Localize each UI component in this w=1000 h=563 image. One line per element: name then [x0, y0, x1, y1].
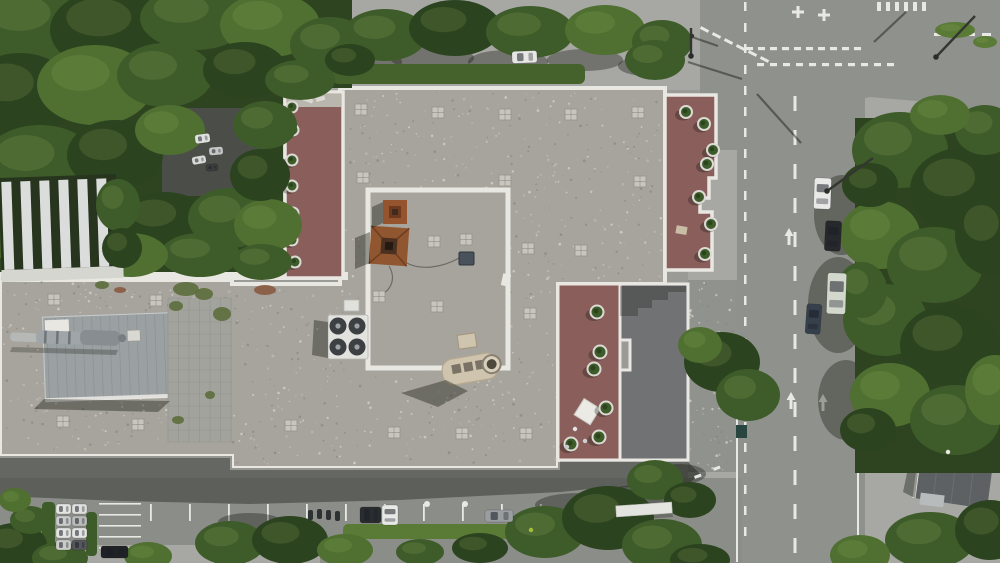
car-body	[194, 133, 210, 144]
lane-dash	[794, 232, 797, 247]
lane-dash	[794, 436, 797, 451]
canopy-highlight	[238, 156, 268, 179]
van-white	[512, 51, 537, 64]
planter-tree-core	[597, 349, 602, 354]
lane-dash	[744, 191, 747, 200]
canopy-highlight	[324, 538, 352, 552]
lane-dash	[744, 464, 747, 473]
van-dark	[360, 507, 381, 523]
car-rear-window	[66, 518, 69, 524]
aerial-scene	[0, 0, 1000, 563]
lane-dash	[744, 23, 747, 32]
hvac-box	[344, 300, 359, 311]
car-windshield	[809, 310, 820, 318]
car-parked	[56, 528, 71, 538]
canopy-highlight	[940, 24, 960, 31]
fan-hub	[335, 323, 340, 328]
lane-dash	[794, 164, 797, 179]
pedestrian	[583, 439, 587, 443]
canopy-highlight	[574, 494, 620, 523]
pedestrian	[573, 427, 577, 431]
canopy-highlight	[331, 48, 356, 62]
canopy-highlight	[684, 332, 706, 348]
canopy-highlight	[899, 237, 947, 271]
lane-dash	[770, 63, 777, 66]
car-body	[485, 510, 513, 522]
canopy-highlight	[634, 465, 662, 483]
planter-tree-core	[704, 161, 709, 166]
planter-tree-core	[696, 194, 701, 199]
canopy-highlight	[243, 206, 277, 229]
lane-dash	[794, 402, 797, 417]
car-windshield	[75, 518, 79, 524]
car-gray	[485, 510, 513, 522]
cross-marking	[823, 9, 826, 21]
stall-dot	[424, 501, 430, 507]
car-rear-window	[119, 548, 124, 556]
car-body	[72, 504, 87, 514]
canopy-highlight	[850, 210, 890, 241]
lane-dash	[835, 63, 842, 66]
lane-dash	[744, 170, 747, 179]
lane-dash	[744, 317, 747, 326]
canopy-highlight	[923, 159, 975, 197]
lane-arrow-stem	[790, 399, 793, 409]
pipe-band	[68, 331, 71, 344]
lane-dash	[794, 368, 797, 383]
lane-dash	[746, 47, 753, 50]
canopy-highlight	[838, 540, 868, 558]
car-rear-window	[374, 509, 378, 521]
lane-dash	[913, 2, 917, 11]
lane-dash	[854, 47, 861, 50]
canopy-highlight	[964, 205, 999, 241]
canopy-highlight	[421, 7, 467, 32]
planter-tree-core	[702, 251, 707, 256]
lane-dash	[794, 266, 797, 281]
hvac-shadow	[312, 320, 328, 358]
lane-dash	[150, 504, 152, 521]
lane-dash	[99, 536, 141, 538]
lane-dash	[809, 63, 816, 66]
canopy-highlight	[678, 548, 708, 562]
annex-rooftop-box	[45, 319, 69, 332]
car-windshield	[830, 281, 844, 292]
car-body	[56, 528, 71, 538]
canopy-highlight	[497, 13, 541, 36]
canopy-highlight	[921, 394, 966, 426]
car-windshield	[59, 506, 63, 512]
lane-dash	[794, 334, 797, 349]
pipe-segment	[10, 332, 38, 342]
pipe-segment	[36, 330, 82, 345]
car-windshield	[75, 506, 79, 512]
canopy-highlight	[107, 233, 127, 251]
lane-dash	[744, 296, 747, 305]
roof-patch	[172, 416, 184, 424]
planter-tree-core	[701, 121, 706, 126]
planter-tree-core	[591, 366, 596, 371]
car-rear-window	[82, 518, 85, 524]
canopy-highlight	[843, 269, 868, 294]
pedestrian	[690, 34, 694, 38]
car-windshield	[75, 530, 79, 536]
canopy-highlight	[144, 111, 179, 134]
chimney-small	[383, 200, 407, 224]
car-windshield	[59, 530, 63, 536]
canopy-highlight	[129, 51, 177, 80]
fan-hub	[335, 344, 340, 349]
lane-dash	[782, 47, 789, 50]
canopy-highlight	[575, 11, 615, 34]
canopy-highlight	[199, 196, 241, 223]
car-rear-window	[66, 542, 69, 548]
pole-lamp-head	[933, 54, 939, 60]
car-parked	[56, 504, 71, 514]
canopy-highlight	[214, 49, 256, 74]
car-rear-window	[503, 512, 508, 520]
lane-dash	[861, 63, 868, 66]
chimney-large	[369, 226, 410, 267]
hedge-parking	[86, 512, 97, 556]
recycling-bin	[736, 425, 747, 438]
car-rear-window	[66, 506, 69, 512]
planter-tree-core	[292, 259, 296, 263]
canopy-highlight	[274, 65, 309, 83]
canopy-highlight	[976, 38, 988, 43]
lane-dash	[758, 47, 765, 50]
planter-tree-core	[596, 434, 601, 439]
motorcycle	[317, 509, 322, 519]
canopy-highlight	[262, 522, 300, 544]
canopy-highlight	[918, 100, 948, 118]
car-body	[813, 178, 831, 210]
car-body	[101, 546, 128, 558]
lane-dash	[830, 47, 837, 50]
canopy-highlight	[204, 527, 239, 547]
canopy-highlight	[724, 376, 756, 399]
lane-dash	[794, 96, 797, 111]
canopy-highlight	[66, 0, 131, 36]
car-rear-window	[528, 53, 533, 61]
fan-hub	[354, 344, 359, 349]
car-rear-window	[82, 542, 85, 548]
lane-dash	[794, 504, 797, 519]
canopy-highlight	[102, 186, 124, 209]
lane-dash	[744, 254, 747, 263]
lane-dash	[99, 514, 141, 516]
car-rear-window	[808, 323, 818, 329]
car-body	[56, 540, 71, 550]
canopy-highlight	[633, 45, 663, 63]
car-body	[56, 516, 71, 526]
canopy-highlight	[402, 542, 426, 554]
roof-patch	[205, 391, 215, 399]
roof-patch	[169, 301, 183, 311]
car-parked	[72, 540, 87, 550]
canopy-highlight	[170, 239, 210, 259]
canopy-highlight	[964, 508, 999, 535]
lane-dash	[744, 275, 747, 284]
pipe-band	[44, 330, 47, 343]
stall-dot	[462, 501, 468, 507]
car-body	[512, 51, 537, 64]
lane-dash	[744, 2, 747, 11]
canopy-highlight	[3, 491, 19, 502]
lane-dash	[886, 2, 890, 11]
canopy-highlight	[130, 546, 154, 559]
pole-lamp-head	[824, 188, 830, 194]
car-windshield	[59, 542, 63, 548]
car-body	[56, 504, 71, 514]
planter-tree-core	[289, 157, 293, 161]
lane-dash	[806, 47, 813, 50]
chimney-shadow	[355, 232, 370, 269]
car-parked	[72, 504, 87, 514]
roof-patch	[254, 285, 276, 295]
lane-dash	[874, 63, 881, 66]
lane-dash	[770, 47, 777, 50]
car-windshield	[491, 512, 498, 520]
lane-dash	[99, 525, 141, 527]
car-body	[805, 304, 822, 335]
canopy-highlight	[671, 487, 697, 503]
car-rear-window	[829, 300, 843, 308]
lane-dash	[744, 65, 747, 74]
car-body	[382, 505, 398, 525]
car-body	[72, 516, 87, 526]
pedestrian	[529, 528, 533, 532]
vent-hatch	[451, 364, 461, 374]
car-body	[209, 146, 224, 155]
roof-patch	[213, 307, 231, 321]
lane-dash	[842, 47, 849, 50]
car-body	[360, 507, 381, 523]
lane-dash	[744, 527, 747, 536]
canopy-highlight	[515, 513, 555, 536]
lane-dash	[848, 63, 855, 66]
annex-building	[43, 313, 174, 402]
cross-marking	[797, 6, 800, 18]
lane-dash	[744, 86, 747, 95]
lane-dash	[744, 149, 747, 158]
lane-dash	[744, 212, 747, 221]
planter-tree-core	[683, 109, 688, 114]
aerial-photo	[0, 0, 1000, 563]
lane-dash	[345, 504, 347, 521]
car-windshield	[59, 518, 63, 524]
car-windshield	[75, 542, 79, 548]
planter-tree-core	[289, 183, 293, 187]
chimney-core	[385, 242, 394, 251]
lane-dash	[877, 2, 881, 11]
canopy-highlight	[241, 107, 273, 129]
planter-tree-core	[603, 405, 608, 410]
pipe-band	[56, 331, 59, 344]
car-rear-window	[66, 530, 69, 536]
rooftop-box	[457, 333, 477, 349]
lane-dash	[189, 504, 191, 521]
car-windshield	[106, 548, 113, 556]
lane-dash	[818, 47, 825, 50]
lane-dash	[744, 107, 747, 116]
canopy-highlight	[896, 519, 941, 544]
roof-patch	[195, 288, 213, 300]
lane-dash	[982, 33, 991, 36]
car-windshield	[828, 227, 839, 235]
car-parked	[72, 528, 87, 538]
lane-dash	[99, 503, 141, 505]
motorcycle	[335, 511, 340, 521]
canopy-highlight	[240, 249, 270, 265]
car-rear-window	[82, 530, 85, 536]
car-body	[206, 163, 219, 171]
annex-vent	[127, 330, 140, 341]
canopy-highlight	[300, 24, 340, 49]
lane-dash	[744, 506, 747, 515]
canopy-highlight	[354, 16, 396, 39]
lane-arrow-stem	[788, 235, 791, 245]
lane-dash	[895, 2, 899, 11]
lane-dash	[794, 198, 797, 213]
lane-dash	[757, 63, 764, 66]
lane-dash	[744, 233, 747, 242]
lane-dash	[922, 2, 926, 11]
car-rear-window	[385, 518, 396, 522]
canopy-highlight	[860, 371, 900, 400]
car-lot	[209, 146, 224, 155]
lane-dash	[794, 538, 797, 553]
canopy-highlight	[864, 122, 912, 156]
planter-tree-core	[708, 221, 713, 226]
motorcycle	[326, 510, 331, 520]
car-rear-window	[816, 198, 828, 204]
lane-dash	[744, 485, 747, 494]
car-windshield	[517, 53, 524, 61]
canopy-highlight	[52, 55, 110, 91]
car-dark	[101, 546, 128, 558]
motorcycle	[308, 510, 313, 520]
car-rear-window	[827, 241, 838, 247]
van-white-2	[382, 505, 398, 525]
car-pale-green	[826, 273, 846, 315]
dark-roof-vent	[459, 252, 474, 265]
fan-hub	[354, 323, 359, 328]
pole-lamp-head	[688, 53, 694, 59]
pedestrian	[565, 445, 569, 449]
car-body	[824, 221, 842, 252]
lane-dash	[744, 128, 747, 137]
vent-hatch	[463, 362, 473, 372]
car-lot	[194, 133, 210, 144]
car-dark-blue	[805, 304, 822, 335]
planter-tree-core	[594, 309, 599, 314]
car-white	[813, 178, 831, 210]
car-body	[72, 528, 87, 538]
lane-dash	[794, 300, 797, 315]
canopy-highlight	[233, 1, 283, 30]
car-lot	[206, 163, 219, 171]
lane-dash	[783, 63, 790, 66]
planter-tree-core	[710, 147, 715, 152]
car-parked	[56, 540, 71, 550]
car-windshield	[385, 509, 396, 514]
car-black	[824, 221, 842, 252]
canopy-highlight	[632, 526, 672, 549]
lane-dash	[794, 470, 797, 485]
roof-patch	[95, 281, 109, 289]
car-parked	[56, 516, 71, 526]
canopy-highlight	[459, 537, 487, 551]
lane-dash	[794, 47, 801, 50]
lane-dash	[822, 63, 829, 66]
car-windshield	[212, 149, 216, 153]
lane-dash	[744, 443, 747, 452]
car-body	[826, 273, 846, 315]
planter-tree-core	[568, 441, 573, 446]
car-rear-window	[82, 506, 85, 512]
car-parked	[72, 516, 87, 526]
car-body	[72, 540, 87, 550]
canopy-highlight	[847, 414, 875, 434]
pipe-segment	[80, 330, 120, 346]
lane-dash	[904, 2, 908, 11]
car-windshield	[364, 509, 369, 521]
pedestrian	[946, 450, 950, 454]
planter-tree-core	[289, 104, 293, 108]
lane-dash	[423, 504, 425, 521]
chimney-core	[392, 209, 398, 215]
canopy-highlight	[79, 129, 127, 161]
lane-dash	[796, 63, 803, 66]
canopy-highlight	[913, 315, 963, 351]
roof-patch	[114, 287, 126, 293]
lane-dash	[887, 63, 894, 66]
